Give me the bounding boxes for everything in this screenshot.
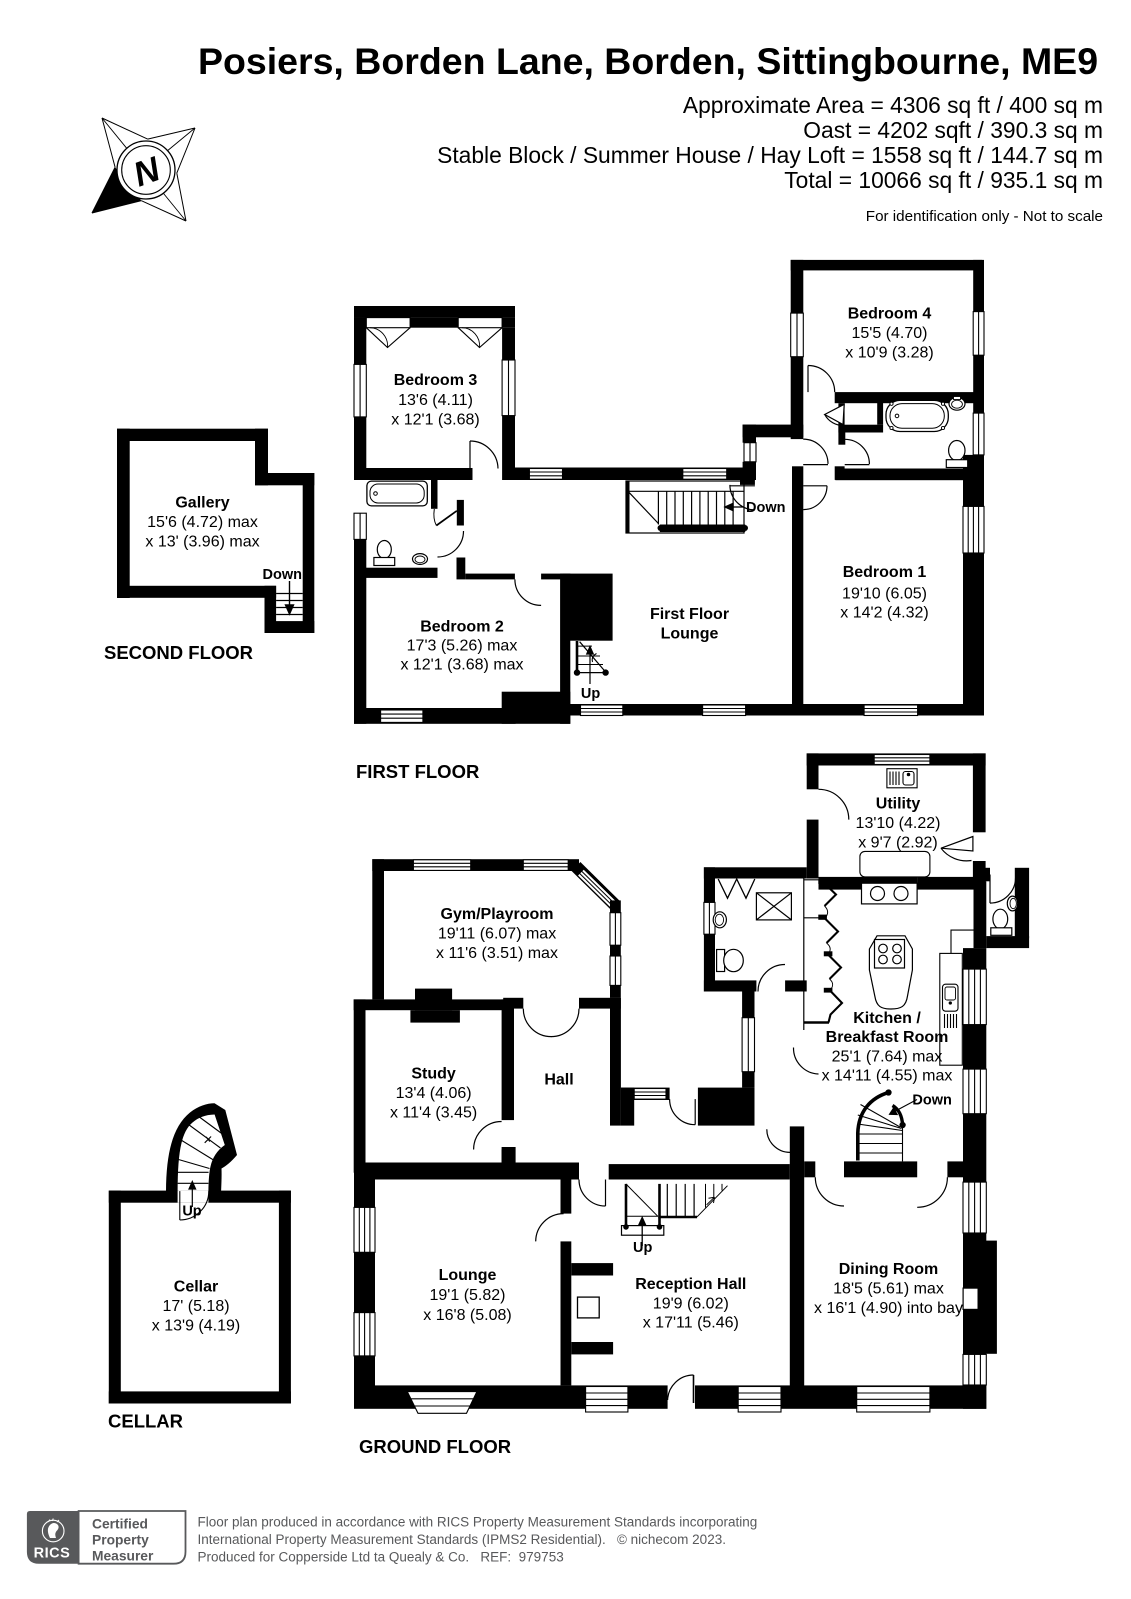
svg-text:SECOND FLOOR: SECOND FLOOR <box>104 642 253 663</box>
svg-text:Up: Up <box>633 1240 652 1256</box>
svg-text:FIRST FLOOR: FIRST FLOOR <box>356 761 479 782</box>
svg-text:Floor plan produced in accorda: Floor plan produced in accordance with R… <box>198 1515 758 1530</box>
svg-text:17'3 (5.26) max: 17'3 (5.26) max <box>407 638 518 655</box>
svg-text:x 17'11 (5.46): x 17'11 (5.46) <box>643 1315 739 1332</box>
svg-text:Down: Down <box>263 567 302 583</box>
svg-text:x 12'1 (3.68) max: x 12'1 (3.68) max <box>400 657 523 674</box>
svg-text:Bedroom 2: Bedroom 2 <box>420 619 504 636</box>
svg-text:13'6 (4.11): 13'6 (4.11) <box>398 392 473 409</box>
svg-text:Utility: Utility <box>876 796 921 813</box>
svg-text:13'4 (4.06): 13'4 (4.06) <box>396 1085 472 1102</box>
svg-text:19'10 (6.05): 19'10 (6.05) <box>842 586 927 603</box>
svg-text:Measurer: Measurer <box>92 1549 154 1564</box>
svg-text:Up: Up <box>182 1204 201 1220</box>
svg-text:19'1 (5.82): 19'1 (5.82) <box>430 1287 506 1304</box>
svg-text:Produced for Copperside Ltd ta: Produced for Copperside Ltd ta Quealy & … <box>198 1550 564 1565</box>
svg-text:For identification only - Not: For identification only - Not to scale <box>866 208 1103 225</box>
svg-text:x 10'9 (3.28): x 10'9 (3.28) <box>845 344 933 361</box>
svg-text:GROUND FLOOR: GROUND FLOOR <box>359 1436 511 1457</box>
svg-text:x 13' (3.96) max: x 13' (3.96) max <box>145 534 259 551</box>
svg-text:Approximate Area = 4306 sq ft: Approximate Area = 4306 sq ft / 400 sq m <box>683 92 1103 118</box>
svg-text:13'10 (4.22): 13'10 (4.22) <box>856 815 941 832</box>
svg-text:Hall: Hall <box>544 1072 573 1089</box>
svg-text:x 14'11 (4.55) max: x 14'11 (4.55) max <box>822 1068 953 1085</box>
svg-text:Lounge: Lounge <box>439 1267 497 1284</box>
svg-text:19'11 (6.07) max: 19'11 (6.07) max <box>438 926 556 943</box>
svg-text:Lounge: Lounge <box>661 626 719 643</box>
svg-text:Breakfast Room: Breakfast Room <box>826 1029 949 1046</box>
svg-text:x 14'2 (4.32): x 14'2 (4.32) <box>840 605 928 622</box>
svg-text:18'5 (5.61) max: 18'5 (5.61) max <box>833 1281 944 1298</box>
svg-text:15'5 (4.70): 15'5 (4.70) <box>852 325 928 342</box>
svg-text:International Property Measure: International Property Measurement Stand… <box>198 1532 726 1547</box>
svg-text:15'6 (4.72) max: 15'6 (4.72) max <box>147 514 258 531</box>
svg-text:Property: Property <box>92 1533 149 1548</box>
svg-text:x 9'7 (2.92): x 9'7 (2.92) <box>858 835 938 852</box>
svg-text:First Floor: First Floor <box>650 606 729 623</box>
svg-text:Down: Down <box>912 1093 951 1109</box>
svg-text:Gallery: Gallery <box>175 495 229 512</box>
svg-text:Dining Room: Dining Room <box>839 1261 939 1278</box>
svg-text:Posiers, Borden Lane, Borden,: Posiers, Borden Lane, Borden, Sittingbou… <box>198 40 1098 82</box>
svg-text:x 16'1 (4.90) into bay: x 16'1 (4.90) into bay <box>814 1300 963 1317</box>
svg-text:Stable Block / Summer House /: Stable Block / Summer House / Hay Loft =… <box>437 142 1103 168</box>
svg-text:CELLAR: CELLAR <box>108 1411 183 1432</box>
svg-text:Study: Study <box>411 1066 456 1083</box>
svg-text:Bedroom 4: Bedroom 4 <box>848 306 932 323</box>
svg-text:Certified: Certified <box>92 1517 148 1532</box>
svg-text:Bedroom 1: Bedroom 1 <box>843 564 927 581</box>
svg-text:Oast = 4202 sqft / 390.3 sq m: Oast = 4202 sqft / 390.3 sq m <box>803 117 1103 143</box>
svg-text:x 11'4 (3.45): x 11'4 (3.45) <box>390 1105 477 1122</box>
svg-text:Cellar: Cellar <box>174 1279 218 1296</box>
svg-text:Bedroom 3: Bedroom 3 <box>394 372 478 389</box>
svg-text:Gym/Playroom: Gym/Playroom <box>441 906 554 923</box>
svg-text:25'1 (7.64) max: 25'1 (7.64) max <box>832 1048 943 1065</box>
svg-text:x 13'9 (4.19): x 13'9 (4.19) <box>152 1318 240 1335</box>
svg-text:x 11'6 (3.51) max: x 11'6 (3.51) max <box>436 945 558 962</box>
svg-text:Total = 10066 sq ft / 935.1 sq: Total = 10066 sq ft / 935.1 sq m <box>784 167 1103 193</box>
svg-text:x 12'1 (3.68): x 12'1 (3.68) <box>391 412 479 429</box>
svg-text:RICS: RICS <box>34 1546 71 1562</box>
svg-text:Reception Hall: Reception Hall <box>635 1276 746 1293</box>
svg-text:17' (5.18): 17' (5.18) <box>162 1298 229 1315</box>
svg-text:19'9 (6.02): 19'9 (6.02) <box>653 1296 729 1313</box>
svg-text:Down: Down <box>746 500 785 516</box>
svg-text:Up: Up <box>581 686 600 702</box>
svg-text:Kitchen /: Kitchen / <box>853 1010 921 1027</box>
svg-text:x 16'8 (5.08): x 16'8 (5.08) <box>423 1307 511 1324</box>
